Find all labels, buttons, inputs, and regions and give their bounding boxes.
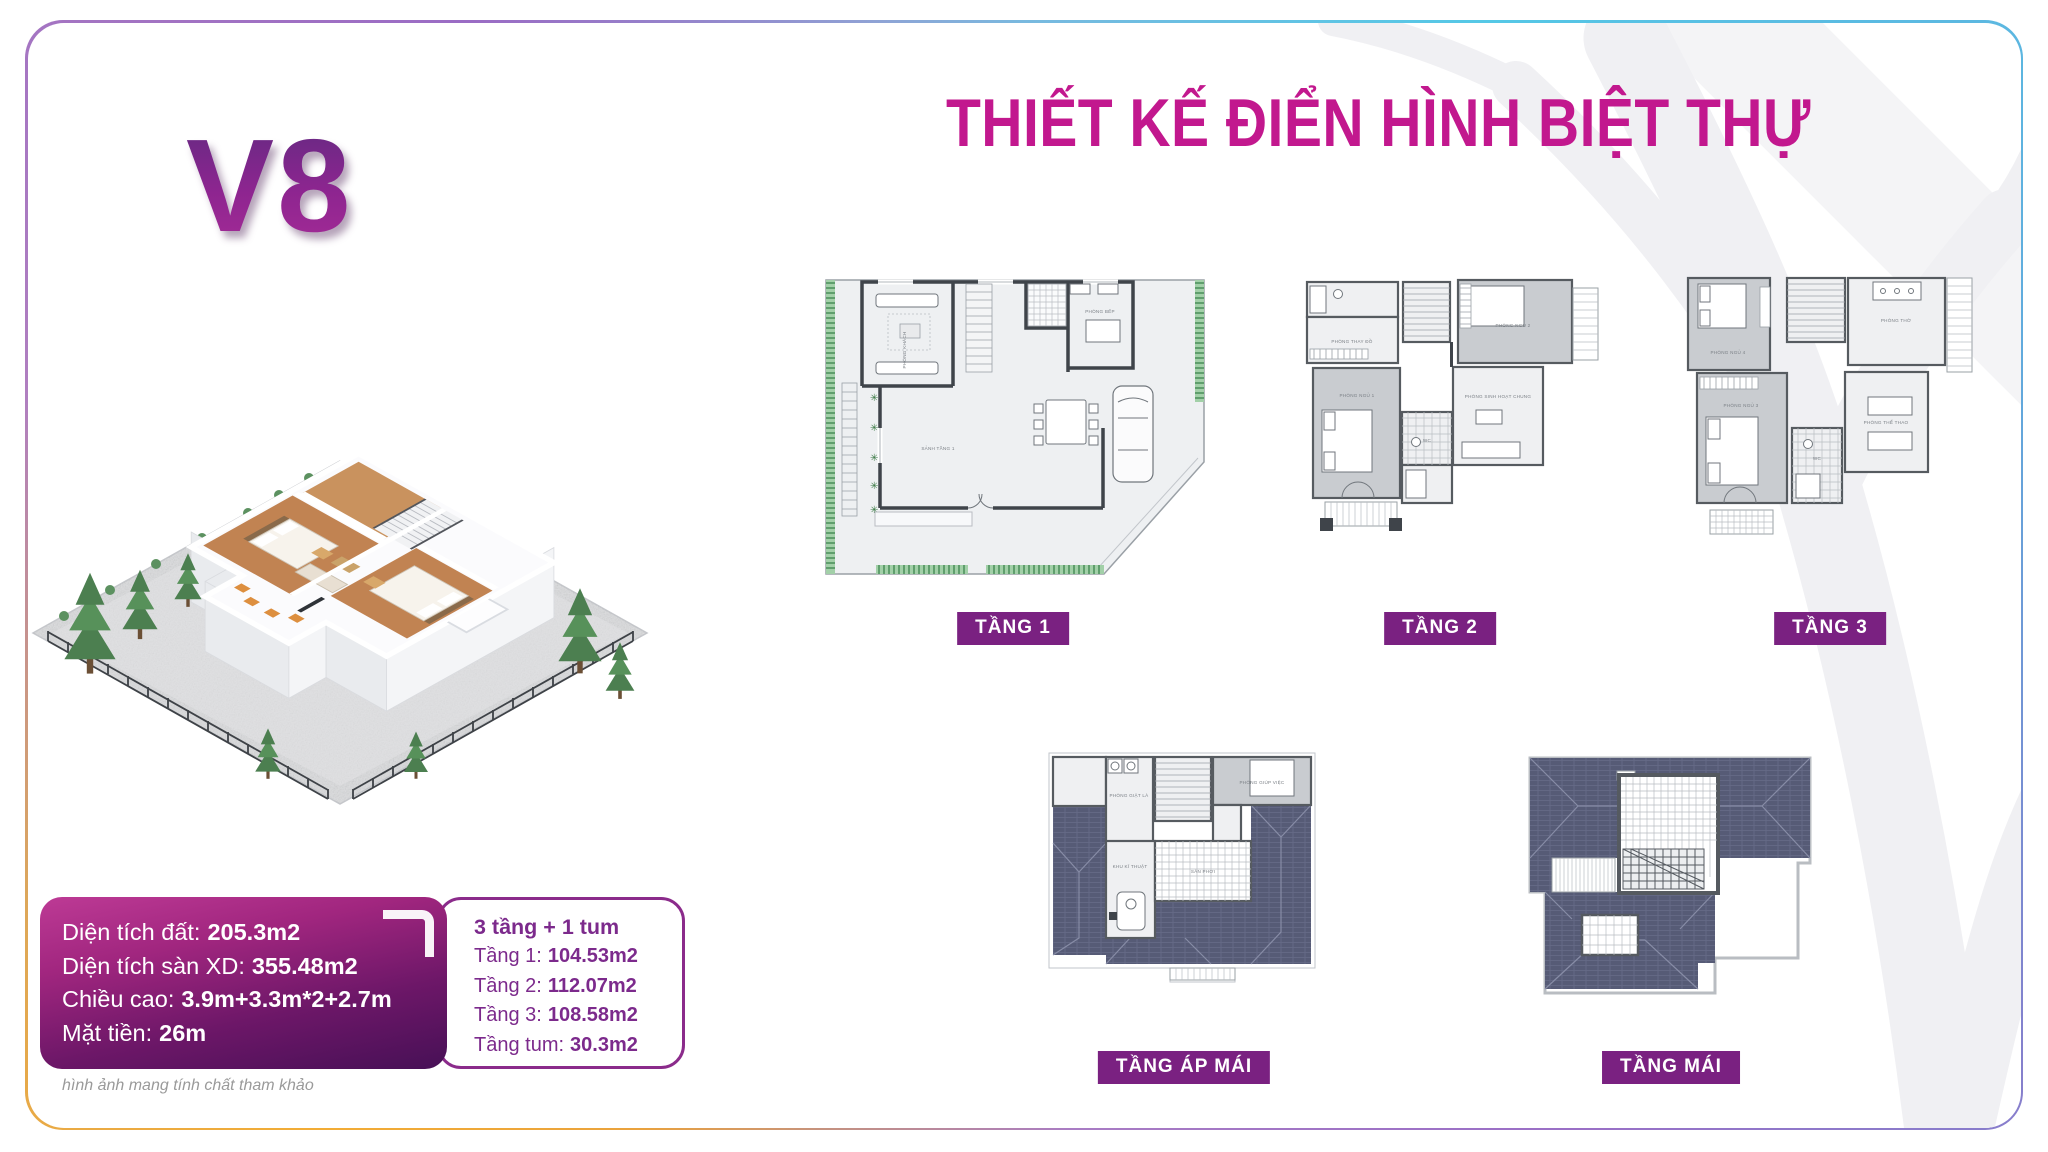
tree-branch-background [971, 23, 2021, 1128]
page-background [28, 23, 2021, 1128]
gradient-border-frame [25, 20, 2023, 1130]
